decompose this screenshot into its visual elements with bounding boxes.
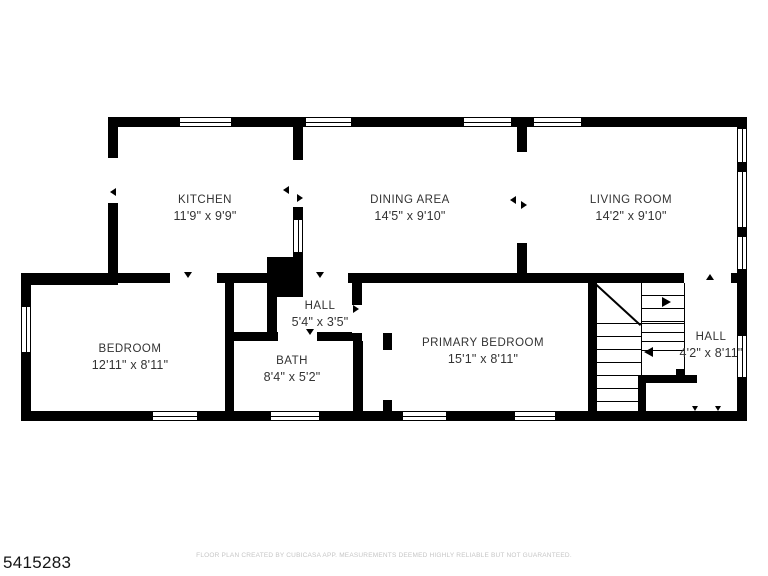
window xyxy=(737,171,747,228)
room-label-kitchen: KITCHEN 11'9" x 9'9" xyxy=(173,193,236,223)
wall xyxy=(225,283,234,411)
wall xyxy=(638,375,697,383)
stairs-up-arrow-icon xyxy=(662,297,671,307)
door-arrow-icon xyxy=(692,406,698,411)
room-label-primary-bedroom: PRIMARY BEDROOM 15'1" x 8'11" xyxy=(422,336,544,366)
door-arrow-icon xyxy=(353,305,359,313)
window xyxy=(514,411,556,421)
window xyxy=(21,306,31,353)
room-name: BEDROOM xyxy=(92,342,168,356)
room-dims: 12'11" x 8'11" xyxy=(92,358,168,372)
room-name: PRIMARY BEDROOM xyxy=(422,336,544,350)
wall xyxy=(731,273,747,283)
room-name: DINING AREA xyxy=(370,193,450,207)
room-dims: 15'1" x 8'11" xyxy=(422,352,544,366)
room-label-hall-right: HALL 4'2" x 8'11" xyxy=(679,330,742,360)
room-dims: 11'9" x 9'9" xyxy=(173,209,236,223)
door-opening xyxy=(170,273,217,283)
wall xyxy=(588,283,597,411)
door-arrow-icon xyxy=(510,196,516,204)
room-label-hall: HALL 5'4" x 3'5" xyxy=(292,299,349,329)
window xyxy=(463,117,512,127)
room-dims: 5'4" x 3'5" xyxy=(292,315,349,329)
door-arrow-icon xyxy=(715,406,721,411)
room-name: HALL xyxy=(679,330,742,344)
room-name: KITCHEN xyxy=(173,193,236,207)
window xyxy=(533,117,582,127)
wall xyxy=(353,341,363,411)
window xyxy=(179,117,232,127)
stairs-divider-line xyxy=(641,283,642,378)
floor-plan: KITCHEN 11'9" x 9'9" DINING AREA 14'5" x… xyxy=(0,0,768,576)
room-dims: 14'2" x 9'10" xyxy=(590,209,672,223)
room-name: LIVING ROOM xyxy=(590,193,672,207)
door-opening xyxy=(517,152,527,243)
stairs-down-arrow-icon xyxy=(644,347,653,357)
wall xyxy=(21,273,118,285)
room-dims: 4'2" x 8'11" xyxy=(679,346,742,360)
door-arrow-icon xyxy=(110,188,116,196)
room-label-living-room: LIVING ROOM 14'2" x 9'10" xyxy=(590,193,672,223)
room-label-bath: BATH 8'4" x 5'2" xyxy=(264,354,321,384)
door-arrow-icon xyxy=(184,272,192,278)
window xyxy=(402,411,447,421)
window xyxy=(737,128,747,163)
door-arrow-icon xyxy=(316,272,324,278)
room-name: BATH xyxy=(264,354,321,368)
door-opening xyxy=(303,273,348,283)
room-label-dining-area: DINING AREA 14'5" x 9'10" xyxy=(370,193,450,223)
stairs-break-line xyxy=(596,284,641,326)
room-dims: 8'4" x 5'2" xyxy=(264,370,321,384)
window xyxy=(152,411,198,421)
disclaimer-text: FLOOR PLAN CREATED BY CUBICASA APP. MEAS… xyxy=(196,552,572,559)
window xyxy=(293,219,303,253)
wall xyxy=(676,369,684,375)
wall xyxy=(21,411,747,421)
door-arrow-icon xyxy=(706,274,714,280)
wall xyxy=(383,400,392,411)
wall xyxy=(383,333,392,350)
window xyxy=(737,236,747,270)
door-arrow-icon xyxy=(521,201,527,209)
door-opening xyxy=(108,158,118,203)
stairs-lower-flight xyxy=(597,324,641,411)
room-dims: 14'5" x 9'10" xyxy=(370,209,450,223)
room-label-bedroom: BEDROOM 12'11" x 8'11" xyxy=(92,342,168,372)
window xyxy=(270,411,320,421)
window xyxy=(305,117,352,127)
door-arrow-icon xyxy=(297,194,303,202)
room-name: HALL xyxy=(292,299,349,313)
door-arrow-icon xyxy=(306,329,314,335)
plan-id: 5415283 xyxy=(3,553,71,573)
door-arrow-icon xyxy=(283,186,289,194)
